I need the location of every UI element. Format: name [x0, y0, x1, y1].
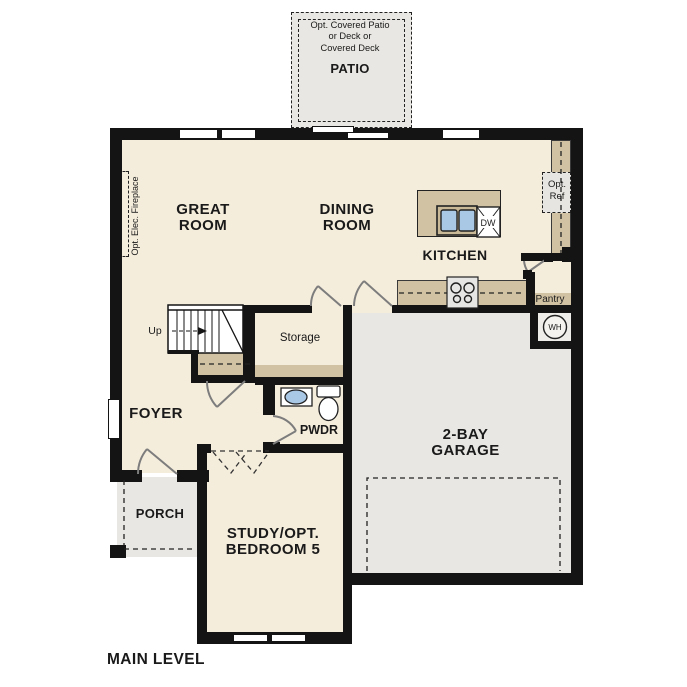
water-heater-label: WH	[548, 323, 562, 332]
powder-label: PWDR	[289, 424, 349, 437]
great-room-label: GREAT ROOM	[153, 202, 253, 234]
storage-label: Storage	[270, 332, 330, 344]
storage-door	[311, 286, 341, 306]
patio-label: PATIO	[300, 62, 400, 76]
foyer-label: FOYER	[111, 406, 201, 422]
garage-entry-door	[354, 281, 392, 306]
garage-label: 2-BAY GARAGE	[413, 427, 518, 459]
powder-sink	[281, 388, 312, 406]
floor-plan: DW WH Opt. Covered Patio or Deck or Cove…	[0, 0, 687, 687]
fireplace-label: Opt. Elec. Fireplace	[130, 161, 142, 271]
opt-ref-label: Opt. Ref	[542, 179, 572, 203]
toilet	[317, 386, 340, 421]
pantry-label: Pantry	[529, 294, 571, 305]
pantry-door-hinge-2	[523, 270, 532, 279]
study-label: STUDY/OPT. BEDROOM 5	[213, 526, 333, 558]
kitchen-label: KITCHEN	[405, 248, 505, 263]
garage-door-dashed	[367, 478, 560, 571]
water-heater: WH	[544, 316, 567, 339]
patio-note: Opt. Covered Patio or Deck or Covered De…	[294, 20, 406, 54]
pantry-door-hinge-1	[544, 253, 553, 262]
dishwasher-label: DW	[481, 218, 496, 228]
study-optional-doors	[211, 451, 269, 473]
understair-closet-door	[207, 381, 245, 407]
level-title: MAIN LEVEL	[107, 652, 267, 668]
dishwasher: DW	[477, 207, 500, 237]
stair-up-label: Up	[144, 325, 166, 337]
island-sink	[437, 206, 477, 235]
range-stove	[447, 277, 478, 308]
porch-label: PORCH	[120, 507, 200, 521]
plan-linework: DW WH	[0, 0, 687, 687]
dining-room-label: DINING ROOM	[297, 202, 397, 234]
staircase	[168, 305, 243, 354]
front-door	[138, 449, 177, 474]
